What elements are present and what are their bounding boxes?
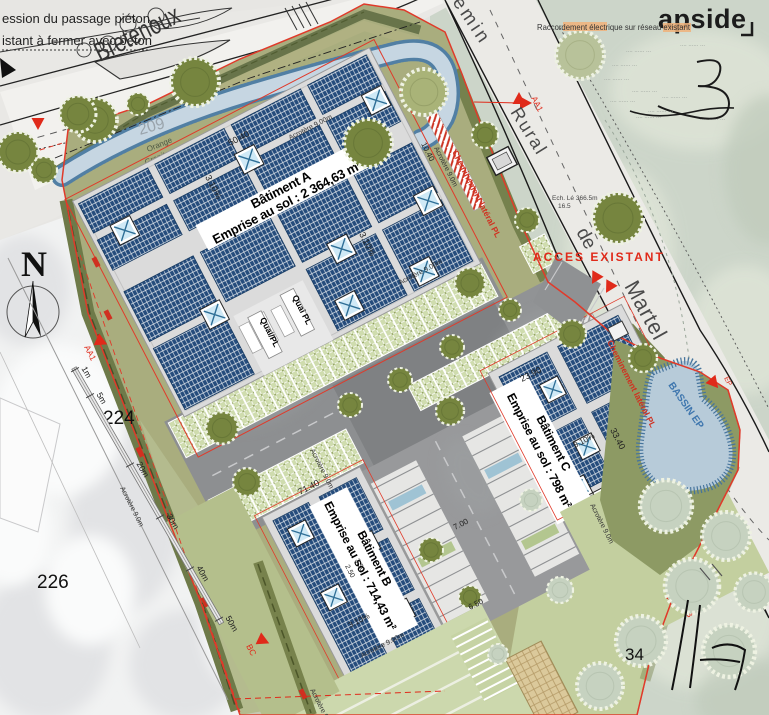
svg-text:.... ...... ...: .... ...... ... bbox=[662, 94, 687, 100]
svg-text:ACCES EXISTANT: ACCES EXISTANT bbox=[533, 250, 665, 264]
svg-text:.... ...... ...: .... ...... ... bbox=[604, 76, 629, 82]
svg-text:.... ...... ...: .... ...... ... bbox=[680, 42, 705, 48]
svg-text:.... ...... ...: .... ...... ... bbox=[632, 88, 657, 94]
svg-text:Raccordement électrique sur ré: Raccordement électrique sur réseau exist… bbox=[537, 22, 691, 32]
svg-text:N: N bbox=[21, 244, 47, 284]
svg-text:226: 226 bbox=[37, 572, 69, 593]
svg-text:.... ...... ...: .... ...... ... bbox=[610, 98, 635, 104]
svg-text:.... ...... ...: .... ...... ... bbox=[612, 62, 637, 68]
svg-text:16.5: 16.5 bbox=[558, 203, 571, 210]
svg-text:.... ...... ...: .... ...... ... bbox=[636, 114, 661, 120]
svg-text:34: 34 bbox=[625, 645, 644, 664]
svg-text:.... ...... ...: .... ...... ... bbox=[700, 116, 725, 122]
svg-text:.... ...... ...: .... ...... ... bbox=[626, 48, 651, 54]
svg-text:Ech. Lé 366.5m: Ech. Lé 366.5m bbox=[552, 195, 598, 202]
